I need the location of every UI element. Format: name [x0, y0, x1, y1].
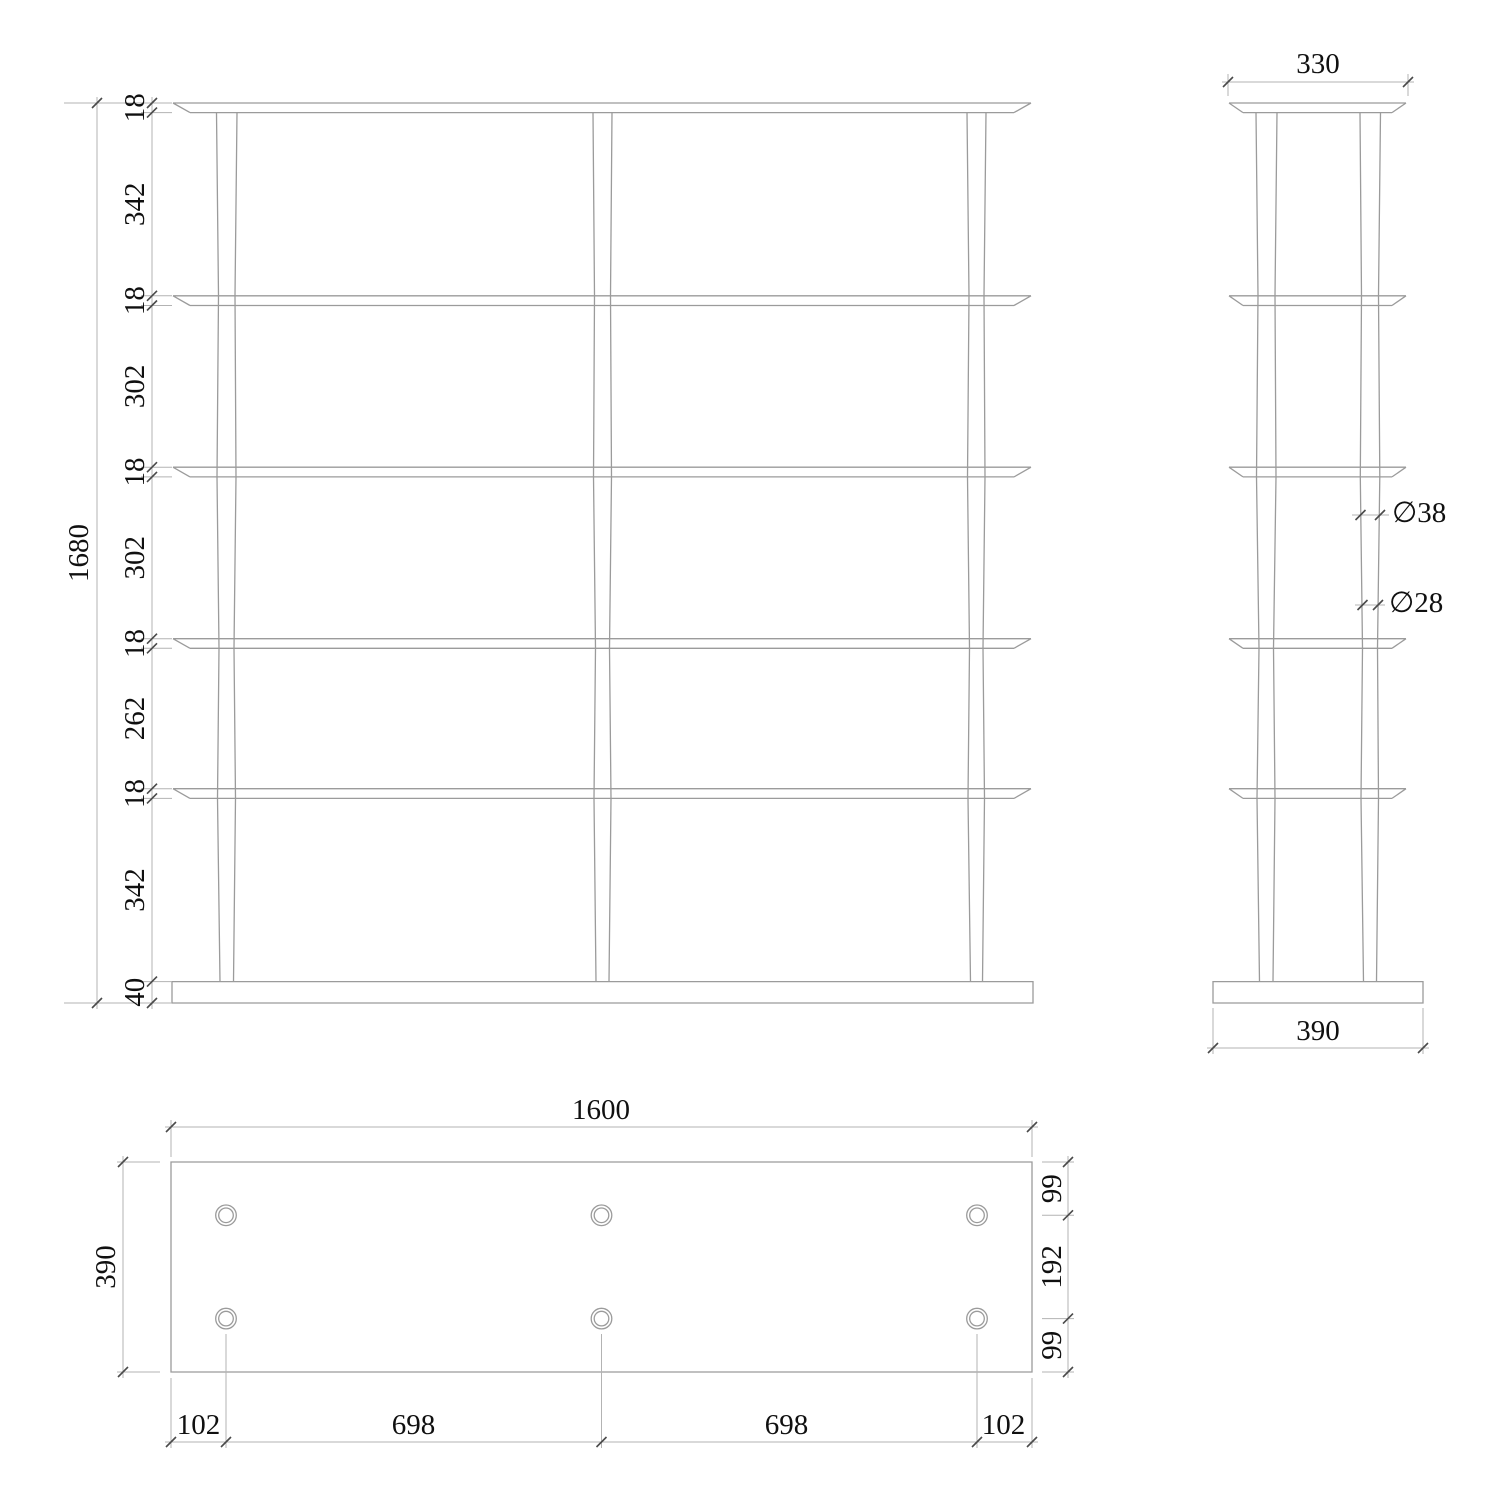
front-chain-label-1: 342 — [119, 182, 151, 226]
side-top-width-label: 330 — [1296, 48, 1340, 80]
side-dimensions: 330 390 ∅38 ∅28 — [1207, 48, 1446, 1054]
front-chain-label-2: 18 — [119, 286, 151, 315]
plan-width-chain-label-3: 102 — [982, 1409, 1026, 1441]
plan-depth-chain-label-2: 99 — [1036, 1331, 1068, 1360]
plan-width-chain-label-2: 698 — [765, 1409, 809, 1441]
leg-hole-inner — [219, 1311, 234, 1326]
plan-dimensions: 1600 390 99 192 99 102 698 698 102 — [90, 1094, 1074, 1448]
leg-hole-inner — [970, 1311, 985, 1326]
front-shelves — [173, 103, 1031, 798]
side-leg-upper-diameter-label: ∅38 — [1392, 497, 1446, 529]
plan-dim-lines — [117, 1120, 1074, 1448]
front-chain-label-10: 40 — [119, 978, 151, 1007]
technical-drawing-page: 1680 18 342 18 302 18 302 18 262 18 342 … — [0, 0, 1500, 1500]
front-chain-label-9: 342 — [119, 868, 151, 912]
front-view — [172, 103, 1033, 1003]
plan-overall-width-label: 1600 — [572, 1094, 630, 1126]
front-overall-height-label: 1680 — [63, 524, 95, 582]
front-base — [172, 982, 1033, 1003]
leg-hole-inner — [219, 1208, 234, 1223]
plan-overall-depth-label: 390 — [90, 1245, 122, 1289]
front-chain-label-4: 18 — [119, 458, 151, 487]
side-view — [1213, 103, 1423, 1003]
plan-leg-holes — [216, 1205, 988, 1329]
shelving-unit-drawing: 1680 18 342 18 302 18 302 18 262 18 342 … — [0, 0, 1500, 1500]
front-chain-label-7: 262 — [119, 697, 151, 741]
side-base — [1213, 982, 1423, 1003]
leg-hole-inner — [594, 1311, 609, 1326]
plan-depth-chain-label-0: 99 — [1036, 1174, 1068, 1203]
side-leg-lower-diameter-label: ∅28 — [1389, 587, 1443, 619]
front-chain-label-8: 18 — [119, 779, 151, 808]
front-chain-label-0: 18 — [119, 93, 151, 122]
leg-hole-inner — [594, 1208, 609, 1223]
front-legs — [217, 113, 987, 982]
side-dim-lines — [1207, 74, 1429, 1054]
plan-width-chain-label-0: 102 — [177, 1409, 221, 1441]
plan-dim-ticks — [118, 1122, 1073, 1447]
side-base-width-label: 390 — [1296, 1015, 1340, 1047]
plan-depth-chain-label-1: 192 — [1036, 1245, 1068, 1289]
front-chain-label-3: 302 — [119, 365, 151, 409]
front-chain-label-5: 302 — [119, 536, 151, 580]
plan-width-chain-label-1: 698 — [392, 1409, 436, 1441]
side-legs — [1256, 113, 1381, 982]
side-dim-ticks — [1208, 77, 1428, 1053]
front-dimensions: 1680 18 342 18 302 18 302 18 262 18 342 … — [63, 93, 172, 1009]
leg-hole-inner — [970, 1208, 985, 1223]
front-chain-label-6: 18 — [119, 629, 151, 658]
